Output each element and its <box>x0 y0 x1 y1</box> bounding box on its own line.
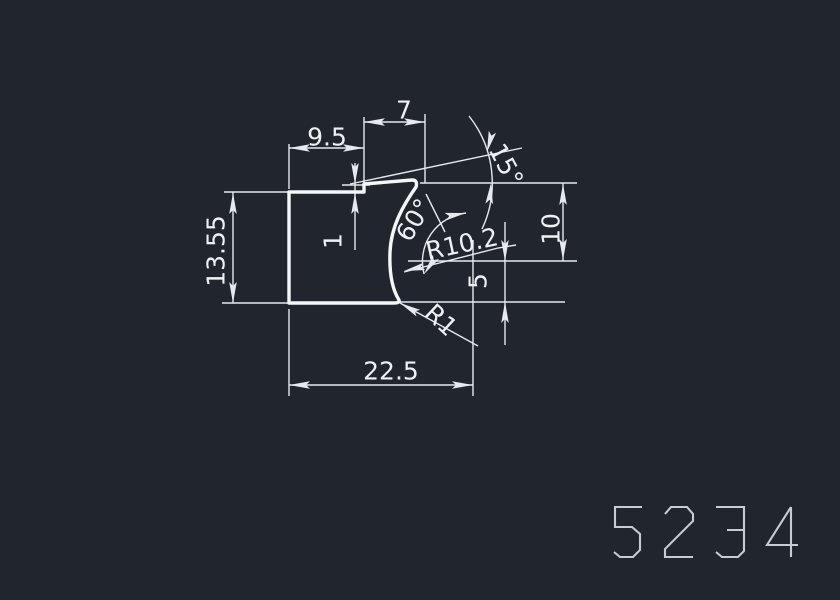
dim-label-1: 1 <box>319 233 348 249</box>
dim-label-7: 7 <box>396 96 412 125</box>
cad-viewport: 5234 <box>0 0 840 600</box>
part-number-digit <box>665 507 693 557</box>
profile-outline <box>289 180 417 303</box>
dim-label-22-5: 22.5 <box>363 357 419 386</box>
dimension-labels: 9.5 7 1 13.55 22.5 10 5 15° 60° R10.2 R1 <box>202 96 566 386</box>
part-number-digit <box>767 507 798 557</box>
dim-label-5: 5 <box>464 273 493 289</box>
part-number <box>614 507 798 557</box>
dim-label-r1: R1 <box>419 298 463 342</box>
dimension-lines <box>222 114 577 396</box>
arrowhead <box>485 183 494 205</box>
dim-label-13-55: 13.55 <box>202 215 231 287</box>
arrowhead <box>403 263 425 275</box>
arrowhead <box>445 209 467 220</box>
cad-drawing-canvas: 9.5 7 1 13.55 22.5 10 5 15° 60° R10.2 R1 <box>0 0 840 600</box>
dim-label-9-5: 9.5 <box>307 123 347 152</box>
part-number-digit <box>614 507 642 557</box>
dim-label-10: 10 <box>537 213 566 245</box>
part-number-digit <box>716 507 744 557</box>
